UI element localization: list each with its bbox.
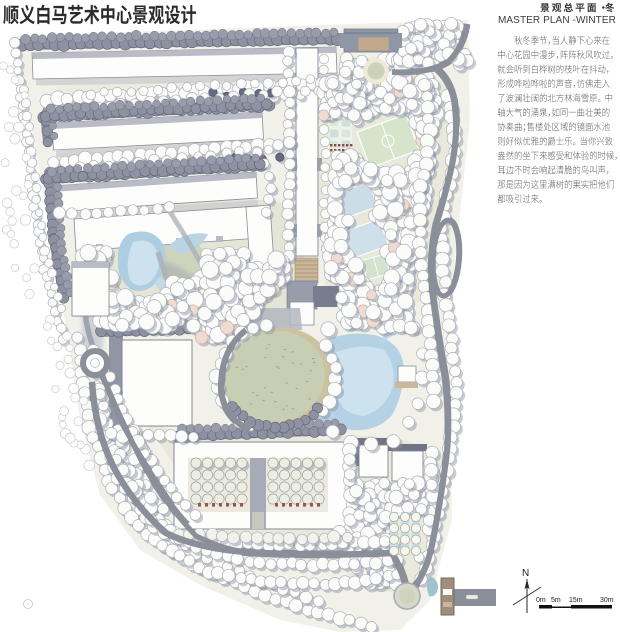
svg-text:N: N <box>522 568 529 579</box>
svg-text:5m: 5m <box>551 597 561 604</box>
svg-text:MASTER PLAN -WINTER: MASTER PLAN -WINTER <box>498 15 616 26</box>
svg-text:0m: 0m <box>536 597 546 604</box>
svg-text:15m: 15m <box>569 597 583 604</box>
svg-text:30m: 30m <box>600 597 614 604</box>
